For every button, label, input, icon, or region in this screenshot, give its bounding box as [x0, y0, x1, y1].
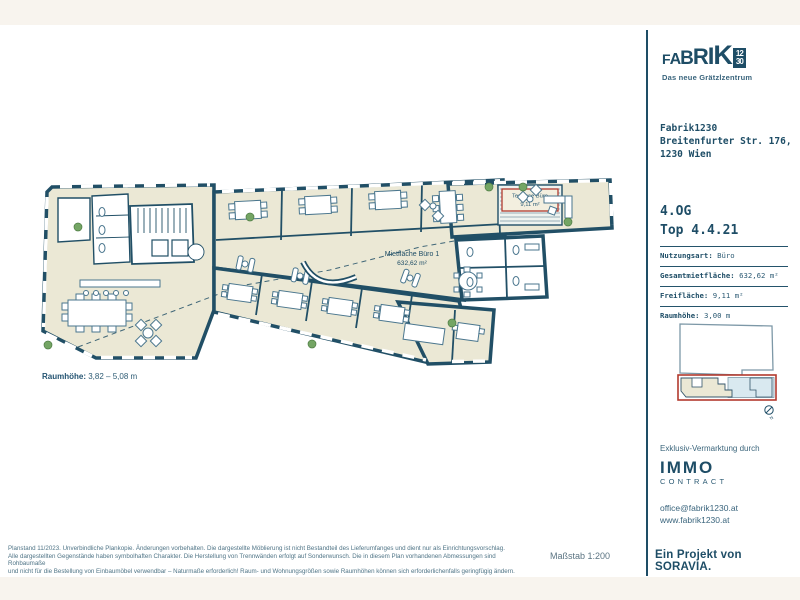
email-link[interactable]: office@fabrik1230.at — [660, 502, 738, 514]
immo-contract-logo: IMMO CONTRACT — [660, 459, 727, 486]
spec-value: 632,62 m² — [739, 271, 779, 280]
website-link[interactable]: www.fabrik1230.at — [660, 514, 738, 526]
disclaimer-line3: und nicht für die Bestellung von Einbaum… — [8, 568, 533, 576]
unit-top: Top 4.4.21 — [660, 221, 738, 240]
area-value: 632,62 m² — [397, 260, 427, 267]
logo-badge-1230: 1230 — [733, 48, 746, 68]
disclaimer-line2: Alle dargestellten Gegenstände haben sym… — [8, 553, 533, 568]
spec-label: Gesamtmietfläche: — [660, 271, 735, 280]
site-plan-map: N — [672, 318, 792, 423]
spec-row-gesamtmietflaeche: Gesamtmietfläche: 632,62 m² — [660, 266, 788, 286]
site-outline — [680, 324, 773, 375]
spec-row-nutzungsart: Nutzungsart: Büro — [660, 246, 788, 266]
svg-text:N: N — [769, 415, 775, 421]
address-line1: Fabrik1230 — [660, 122, 792, 135]
logo-letter: B — [680, 48, 693, 70]
area-label: Mietfläche Büro 1 — [385, 251, 440, 258]
unit-floor: 4.OG — [660, 202, 738, 221]
specs-table: Nutzungsart: Büro Gesamtmietfläche: 632,… — [660, 246, 788, 326]
project-address: Fabrik1230 Breitenfurter Str. 176, 1230 … — [660, 122, 792, 161]
sidebar-divider — [646, 30, 648, 576]
fabrik-logo: FABRIK1230 Das neue Grätzlzentrum — [662, 40, 790, 82]
logo-letter: K — [713, 40, 732, 71]
compass-icon: N — [765, 406, 774, 421]
disclaimer: Planstand 11/2023. Unverbindliche Planko… — [8, 545, 533, 575]
logo-tagline: Das neue Grätzlzentrum — [662, 73, 790, 82]
spec-label: Nutzungsart: — [660, 251, 713, 260]
address-line2: Breitenfurter Str. 176, — [660, 135, 792, 148]
site-footprint-notch — [692, 378, 702, 387]
spec-value: Büro — [717, 251, 735, 260]
plan-room-height-label: Raumhöhe: — [42, 372, 86, 381]
logo-letter: F — [662, 51, 670, 67]
logo-letter: R — [693, 44, 708, 70]
project-credit: Ein Projekt von SORAVIA. — [655, 549, 797, 573]
plan-room-height: Raumhöhe: 3,82 – 5,08 m — [42, 372, 137, 381]
immo-wordmark: IMMO — [660, 459, 727, 476]
immo-contract-sub: CONTRACT — [660, 477, 727, 486]
terrace: Terrasse Büro 9,11 m² — [498, 185, 562, 225]
spec-value: 9,11 m² — [713, 291, 744, 300]
logo-badge-bottom: 30 — [736, 58, 743, 66]
spec-label: Freifläche: — [660, 291, 708, 300]
unit-info: 4.OG Top 4.4.21 — [660, 202, 738, 240]
logo-letter: A — [670, 51, 681, 69]
spec-row-freiflaeche: Freifläche: 9,11 m² — [660, 286, 788, 306]
marketing-heading: Exklusiv-Vermarktung durch — [660, 444, 760, 453]
disclaimer-line1: Planstand 11/2023. Unverbindliche Planko… — [8, 545, 533, 553]
contact-block: office@fabrik1230.at www.fabrik1230.at — [660, 502, 738, 526]
scale-label: Maßstab 1:200 — [550, 551, 610, 561]
fabrik-wordmark: FABRIK1230 — [662, 40, 790, 71]
plan-room-height-value: 3,82 – 5,08 m — [88, 372, 137, 381]
floor-plan: Terrasse Büro 9,11 m² — [30, 170, 615, 395]
address-line3: 1230 Wien — [660, 148, 792, 161]
